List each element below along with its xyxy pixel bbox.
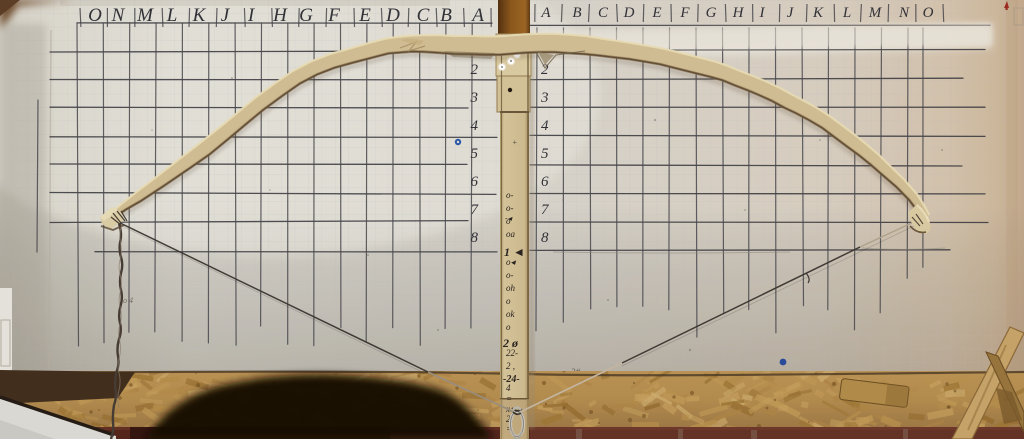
svg-text:2 ø: 2 ø	[502, 336, 519, 350]
svg-text:=: =	[506, 394, 512, 404]
svg-text:2 ,: 2 ,	[506, 361, 515, 371]
svg-text:+: +	[512, 138, 517, 147]
svg-text:-24-: -24-	[503, 374, 520, 385]
svg-text:oh: oh	[506, 283, 516, 293]
svg-text:1 ◄: 1 ◄	[504, 245, 525, 259]
svg-text:o-: o-	[506, 203, 514, 213]
svg-text:oa: oa	[506, 229, 516, 239]
svg-text:o: o	[506, 296, 511, 306]
svg-text:o: o	[506, 322, 511, 332]
svg-text:o-: o-	[506, 190, 514, 200]
svg-text:o-: o-	[506, 270, 514, 280]
svg-text:ok: ok	[506, 309, 516, 319]
